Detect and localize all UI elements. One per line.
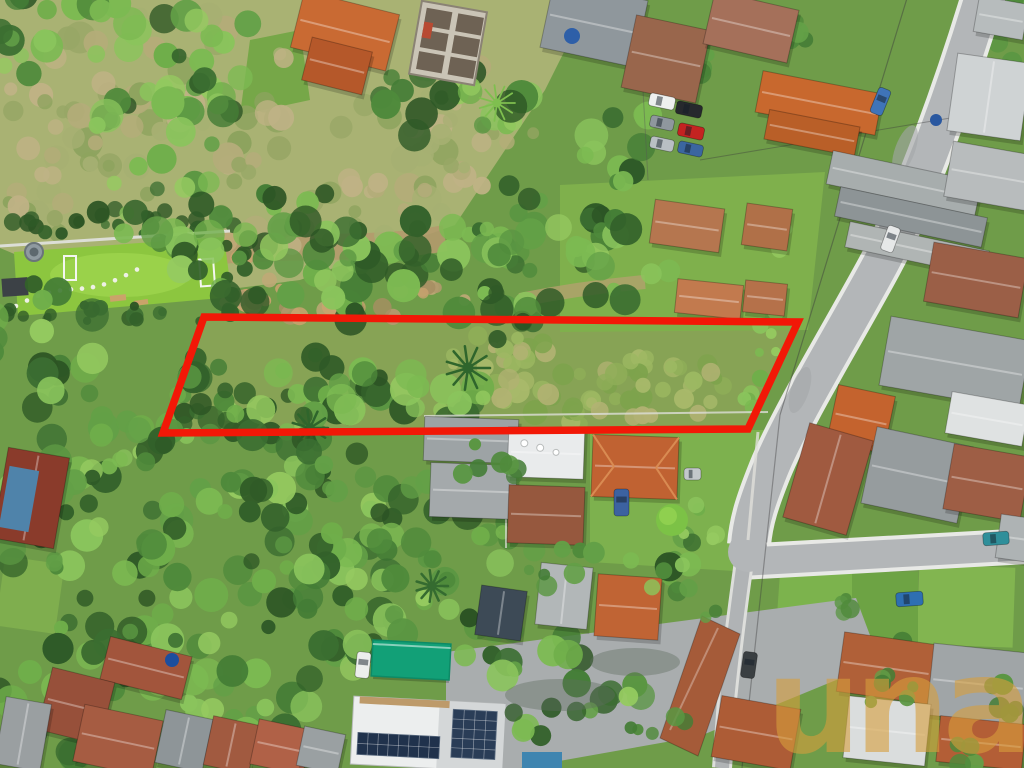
tree-blob: [112, 560, 138, 586]
skylight: [537, 444, 544, 451]
tree-blob: [228, 65, 253, 90]
tree-blob: [577, 147, 594, 164]
tree-blob: [252, 569, 276, 593]
hedge: [129, 312, 143, 326]
tree-blob: [257, 699, 275, 717]
tree-blob: [275, 536, 292, 553]
tree-blob: [345, 568, 367, 590]
play-equipment: [1, 277, 28, 297]
tree-blob: [438, 599, 459, 620]
tree-blob: [150, 182, 165, 197]
scrub-patch: [533, 333, 553, 353]
stepping-stone: [80, 286, 85, 291]
stepping-stone: [113, 278, 118, 283]
tree-blob: [90, 424, 113, 447]
dirt-patch: [373, 298, 392, 317]
tree-blob: [42, 633, 73, 664]
tree-blob: [522, 263, 537, 278]
house-roof: [742, 280, 791, 321]
scrub-patch: [468, 326, 487, 345]
hedge: [4, 213, 22, 231]
tree-blob: [613, 171, 633, 191]
tree-blob: [512, 719, 535, 742]
tree-blob: [107, 176, 122, 191]
scrub-patch: [226, 174, 242, 190]
tree-blob: [136, 452, 155, 471]
tree-blob: [524, 565, 534, 575]
tree-blob: [198, 238, 224, 264]
tree-blob: [261, 620, 275, 634]
tree-blob: [706, 532, 719, 545]
water-tank: [930, 114, 942, 126]
tree-blob: [518, 188, 541, 211]
tree-blob: [675, 557, 690, 572]
skylight: [521, 440, 528, 447]
tree-blob: [188, 260, 208, 280]
scrub-patch: [655, 382, 671, 398]
tree-blob: [491, 452, 512, 473]
tree-blob: [77, 343, 108, 374]
tree-blob: [564, 563, 585, 584]
scrub-patch: [491, 388, 512, 409]
tree-blob: [85, 470, 101, 486]
blue-tarp: [564, 28, 580, 44]
tree-blob: [147, 144, 177, 174]
tree-blob: [429, 79, 460, 110]
tree-blob: [88, 45, 106, 63]
tree-blob: [610, 284, 641, 315]
tree-blob: [407, 375, 430, 398]
tree-blob: [125, 417, 151, 443]
house-roof: [507, 485, 588, 550]
tree-blob: [151, 86, 184, 119]
tree-blob: [499, 175, 520, 196]
tree-blob: [141, 216, 173, 248]
trampoline-center: [30, 248, 39, 257]
car: [614, 489, 629, 516]
tree-blob: [610, 213, 642, 245]
tree-blob: [198, 632, 220, 654]
house-roof: [474, 585, 530, 645]
tree-blob: [264, 358, 293, 387]
scrub-patch: [591, 402, 609, 420]
tree-blob: [240, 477, 267, 504]
tree-blob: [210, 280, 242, 312]
scrub-patch: [48, 119, 64, 135]
tree-blob: [218, 504, 233, 519]
tree-blob: [207, 96, 239, 128]
tree-blob: [172, 49, 187, 64]
tree-blob: [355, 466, 376, 487]
tree-blob: [454, 644, 476, 666]
tree-blob: [174, 177, 195, 198]
tree-blob: [76, 298, 109, 331]
tree-blob: [33, 290, 53, 310]
tree-blob: [602, 107, 623, 128]
tree-blob: [122, 624, 138, 640]
water-tank: [165, 653, 179, 667]
scrub-patch: [473, 177, 491, 195]
scrub-patch: [527, 127, 539, 139]
tree-blob: [538, 569, 550, 581]
scrub-patch: [511, 332, 524, 345]
tree-blob: [339, 249, 356, 266]
tree-blob: [243, 553, 259, 569]
hedge: [69, 213, 85, 229]
tree-blob: [210, 359, 227, 376]
watermark-logo: una: [766, 628, 1024, 768]
scrub-patch: [597, 374, 614, 391]
tree-blob: [406, 398, 425, 417]
tree-blob: [469, 438, 481, 450]
tree-blob: [90, 99, 124, 133]
tree-blob: [290, 206, 322, 238]
tree-blob: [488, 330, 506, 348]
tree-blob: [89, 517, 109, 537]
aerial-photo: una: [0, 0, 1024, 768]
scrub-patch: [4, 82, 17, 95]
stepping-stone: [25, 298, 30, 303]
tree-blob: [453, 464, 473, 484]
tree-blob: [198, 171, 220, 193]
tree-shadow: [505, 679, 615, 711]
tree-blob: [123, 200, 148, 225]
tree-blob: [30, 319, 54, 343]
scrub-patch: [665, 360, 678, 373]
scrub-patch: [274, 48, 294, 68]
tree-blob: [566, 236, 587, 257]
scrub-patch: [431, 124, 452, 145]
tree-blob: [315, 456, 333, 474]
tree-blob: [80, 495, 98, 513]
scrub-patch: [44, 147, 61, 164]
scrub-patch: [121, 115, 144, 138]
tree-blob: [486, 549, 514, 577]
scrub-patch: [537, 384, 559, 406]
tree-blob: [152, 603, 174, 625]
tree-blob: [159, 492, 184, 517]
scrub-patch: [635, 378, 650, 393]
scrub-patch: [443, 158, 459, 174]
tree-blob: [113, 7, 146, 40]
round-tree-highlight: [659, 507, 677, 525]
tree-blob: [641, 263, 662, 284]
tree-blob: [166, 117, 196, 147]
scrub-patch: [62, 126, 85, 149]
tree-blob: [505, 704, 523, 722]
tree-blob: [554, 541, 571, 558]
tree-blob: [37, 377, 65, 405]
tree-blob: [46, 555, 63, 572]
tree-blob: [185, 9, 209, 33]
skylight: [553, 449, 559, 455]
scrub-patch: [574, 368, 586, 380]
tree-blob: [322, 481, 336, 495]
tree-blob: [261, 503, 290, 532]
tree-blob: [239, 501, 261, 523]
tree-blob: [476, 391, 491, 406]
tree-blob: [625, 721, 638, 734]
tree-blob: [766, 328, 777, 339]
scrub-patch: [349, 205, 362, 218]
tree-blob: [194, 578, 228, 612]
dirt-patch: [262, 273, 277, 288]
stepping-stone: [135, 267, 140, 272]
tree-blob: [232, 251, 247, 266]
scrub-patch: [513, 346, 528, 361]
tree-blob: [471, 527, 490, 546]
tree-blob: [266, 587, 296, 617]
tree-blob: [345, 597, 369, 621]
tree-blob: [221, 612, 238, 629]
tree-blob: [644, 579, 660, 595]
tree-blob: [129, 157, 148, 176]
tree-blob: [277, 281, 305, 309]
tree-blob: [77, 590, 94, 607]
tree-blob: [155, 436, 172, 453]
scrub-patch: [418, 183, 433, 198]
hedge: [153, 306, 167, 320]
scrub-patch: [368, 173, 388, 193]
tree-blob: [296, 665, 323, 692]
house-roof: [649, 199, 728, 257]
car: [684, 468, 701, 480]
scrub-patch: [3, 101, 23, 121]
tree-blob: [188, 192, 214, 218]
scene-svg: una: [0, 0, 1024, 768]
tree-blob: [688, 497, 704, 513]
stepping-stone: [91, 285, 96, 290]
tree-blob: [346, 443, 368, 465]
tree-blob: [474, 117, 491, 134]
scrub-patch: [552, 363, 574, 385]
tree-blob: [666, 707, 685, 726]
tree-blob: [623, 552, 639, 568]
scrub-patch: [88, 135, 103, 150]
tree-shadow: [590, 648, 680, 676]
hedge: [24, 211, 40, 227]
tree-blob: [87, 201, 110, 224]
tree-blob: [190, 393, 212, 415]
scrub-patch: [330, 116, 353, 139]
scrub-patch: [674, 389, 694, 409]
tree-blob: [16, 61, 41, 86]
stepping-stone: [124, 273, 129, 278]
tree-blob: [409, 220, 426, 237]
tree-blob: [619, 687, 639, 707]
tree-blob: [248, 286, 266, 304]
tree-blob: [554, 640, 583, 669]
tree-blob: [138, 590, 155, 607]
tree-blob: [399, 234, 432, 267]
tree-blob: [262, 186, 286, 210]
tree-blob: [401, 476, 424, 499]
scrub-patch: [34, 167, 49, 182]
tree-blob: [137, 529, 167, 559]
scrub-patch: [623, 353, 639, 369]
tree-blob: [217, 383, 233, 399]
tree-blob: [440, 258, 463, 281]
tree-blob: [204, 136, 219, 151]
hedge: [38, 225, 52, 239]
tree-blob: [54, 621, 68, 635]
tree-blob: [709, 605, 722, 618]
stepping-stone: [102, 282, 107, 287]
tree-blob: [385, 605, 403, 623]
unfinished-building: [409, 1, 487, 85]
tree-blob: [367, 528, 393, 554]
tree-blob: [321, 286, 345, 310]
scrub-patch: [498, 369, 519, 390]
tree-blob: [755, 348, 764, 357]
tree-blob: [233, 222, 257, 246]
scrub-patch: [268, 105, 294, 131]
tree-blob: [583, 542, 605, 564]
house-roof: [620, 15, 713, 108]
tree-blob: [447, 391, 472, 416]
hip-roof-house: [591, 435, 682, 504]
tree-blob: [168, 633, 183, 648]
tree-blob: [370, 503, 389, 522]
hedge: [55, 227, 67, 239]
tree-blob: [841, 599, 860, 618]
scrub-patch: [620, 391, 640, 411]
car: [983, 531, 1010, 546]
tree-blob: [646, 727, 659, 740]
hedge: [130, 302, 139, 311]
tree-blob: [480, 222, 494, 236]
tree-blob: [583, 282, 609, 308]
scrub-patch: [241, 165, 256, 180]
house-roof: [741, 203, 796, 255]
scrub-patch: [472, 132, 492, 152]
scrub-patch: [609, 392, 622, 405]
scrub-patch: [341, 176, 363, 198]
tree-blob: [488, 243, 511, 266]
house-roof: [674, 279, 747, 324]
hedge: [18, 311, 29, 322]
tree-blob: [114, 223, 134, 243]
solar-roof-building: [350, 696, 505, 768]
tree-blob: [294, 554, 325, 585]
tree-blob: [381, 564, 409, 592]
tree-blob: [586, 252, 615, 281]
tree-blob: [217, 655, 249, 687]
scrub-patch: [701, 363, 720, 382]
tree-blob: [37, 0, 57, 20]
tree-blob: [443, 297, 476, 330]
tree-blob: [398, 119, 431, 152]
car: [355, 651, 372, 678]
hedge: [44, 309, 56, 321]
tree-blob: [327, 384, 357, 414]
tree-blob: [81, 385, 99, 403]
teal-canopy: [371, 640, 451, 683]
tree-blob: [401, 527, 431, 557]
scrub-patch: [267, 136, 291, 160]
tree-blob: [101, 458, 117, 474]
scrub-patch: [703, 395, 717, 409]
tree-blob: [545, 214, 572, 241]
tree-blob: [371, 89, 401, 119]
scrub-patch: [83, 156, 99, 172]
house-roof: [946, 53, 1024, 145]
tree-blob: [18, 660, 42, 684]
tree-blob: [679, 579, 697, 597]
tree-blob: [439, 214, 466, 241]
tree-blob: [308, 348, 322, 362]
scrub-patch: [47, 210, 63, 226]
tree-blob: [226, 405, 244, 423]
tree-blob: [352, 361, 378, 387]
scrub-patch: [684, 372, 702, 390]
house-roof: [942, 444, 1024, 527]
cross-street: [741, 546, 1024, 562]
car: [896, 591, 924, 607]
tree-blob: [90, 0, 113, 22]
scrub-patch: [37, 94, 52, 109]
tree-blob: [33, 29, 56, 52]
scrub-patch: [16, 137, 40, 161]
tree-blob: [655, 562, 672, 579]
tree-blob: [387, 269, 420, 302]
tree-blob: [163, 563, 191, 591]
tree-blob: [321, 522, 343, 544]
scrub-patch: [499, 134, 514, 149]
scrub-patch: [625, 408, 642, 425]
blue-tarp: [522, 752, 562, 768]
scrub-patch: [103, 160, 115, 172]
tree-blob: [192, 67, 216, 91]
tree-blob: [234, 10, 261, 37]
scrub-patch: [458, 162, 470, 174]
tree-blob: [221, 472, 242, 493]
tree-blob: [308, 630, 339, 661]
